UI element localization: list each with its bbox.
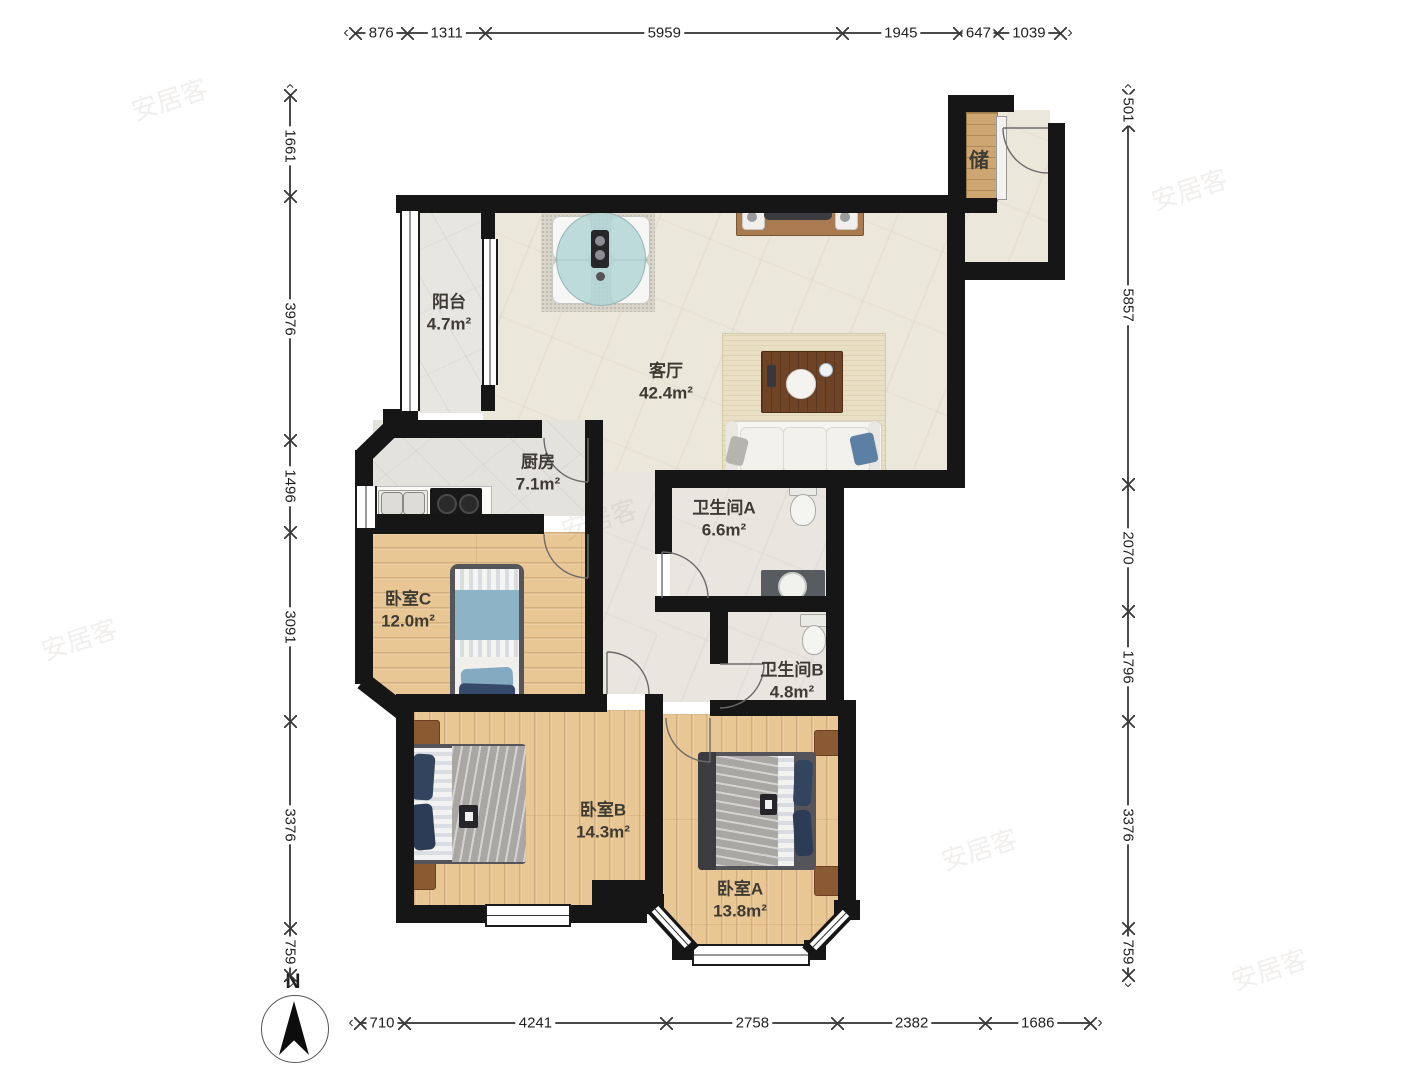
room-name: 卧室C — [381, 589, 435, 611]
room-area: 42.4m² — [639, 383, 693, 405]
room-label-bath-a: 卫生间A 6.6m² — [692, 498, 755, 543]
room-label-kitchen: 厨房 7.1m² — [516, 452, 560, 497]
door-bed-c — [544, 534, 588, 578]
room-name: 卫生间A — [692, 498, 755, 520]
room-area: 4.7m² — [427, 314, 471, 336]
room-area: 14.3m² — [576, 822, 630, 844]
room-name: 厨房 — [516, 452, 560, 474]
room-label-balcony: 阳台 4.7m² — [427, 292, 471, 337]
room-label-bed-c: 卧室C 12.0m² — [381, 589, 435, 634]
room-name: 阳台 — [427, 292, 471, 314]
room-name: 卧室B — [576, 800, 630, 822]
room-label-living: 客厅 42.4m² — [639, 361, 693, 406]
room-area: 7.1m² — [516, 474, 560, 496]
wall-diagonal-bedc-bedb — [363, 681, 408, 716]
compass-north-label: N — [285, 970, 300, 994]
room-label-bed-b: 卧室B 14.3m² — [576, 800, 630, 845]
room-label-bath-b: 卫生间B 4.8m² — [760, 660, 823, 705]
door-bath-a — [662, 552, 708, 598]
room-label-bed-a: 卧室A 13.8m² — [713, 879, 767, 924]
room-area: 6.6m² — [692, 520, 755, 542]
room-area: 13.8m² — [713, 901, 767, 923]
room-name: 储 — [969, 148, 989, 174]
door-bath-b — [720, 664, 764, 708]
bay-window-left-mullion — [655, 909, 688, 945]
room-area: 4.8m² — [760, 682, 823, 704]
room-name: 卧室A — [713, 879, 767, 901]
room-area: 12.0m² — [381, 611, 435, 633]
room-name: 卫生间B — [760, 660, 823, 682]
door-bed-b — [607, 652, 649, 694]
door-entry — [1003, 128, 1048, 173]
door-bed-a — [666, 718, 710, 762]
compass: N — [252, 970, 352, 1065]
wall-diagonal-balcony-kitchen — [362, 417, 403, 457]
floor-plan-canvas: 阳台 4.7m² 客厅 42.4m² 厨房 7.1m² 卫生间A 6.6m² 卫… — [0, 0, 1420, 1065]
room-label-storage: 储 — [969, 148, 989, 174]
room-name: 客厅 — [639, 361, 693, 383]
